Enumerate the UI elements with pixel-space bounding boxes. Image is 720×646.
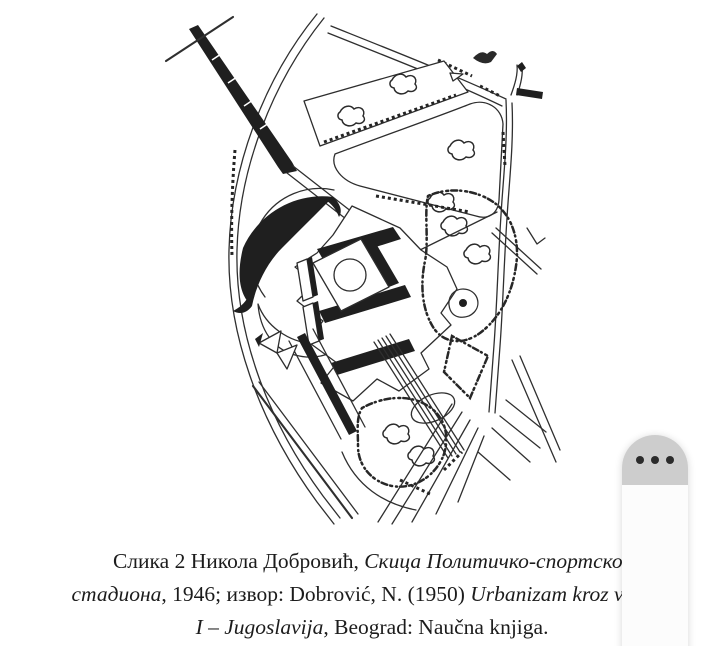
ellipsis-icon: [636, 456, 674, 464]
ellipsis-dot: [636, 456, 644, 464]
figure-caption: Слика 2 Никола Добровић, Скица Политичко…: [0, 545, 720, 644]
caption-run: I – Jugoslavija: [196, 615, 324, 639]
caption-line-2: стадиона, 1946; извор: Dobrović, N. (195…: [0, 578, 720, 611]
caption-line-3: I – Jugoslavija, Beograd: Naučna knjiga.: [0, 611, 720, 644]
caption-run: Слика 2 Никола Добровић,: [113, 549, 364, 573]
caption-run: стадиона: [72, 582, 162, 606]
caption-run: , Beograd: Naučna knjiga.: [323, 615, 548, 639]
caption-line-1: Слика 2 Никола Добровић, Скица Политичко…: [0, 545, 720, 578]
caption-run: Скица Политичко-спортског: [364, 549, 631, 573]
document-page: Слика 2 Никола Добровић, Скица Политичко…: [0, 0, 720, 646]
caption-run: , 1946; извор: Dobrović, N. (1950): [161, 582, 470, 606]
ellipsis-dot: [666, 456, 674, 464]
floating-menu-handle[interactable]: [622, 435, 688, 646]
ellipsis-dot: [651, 456, 659, 464]
